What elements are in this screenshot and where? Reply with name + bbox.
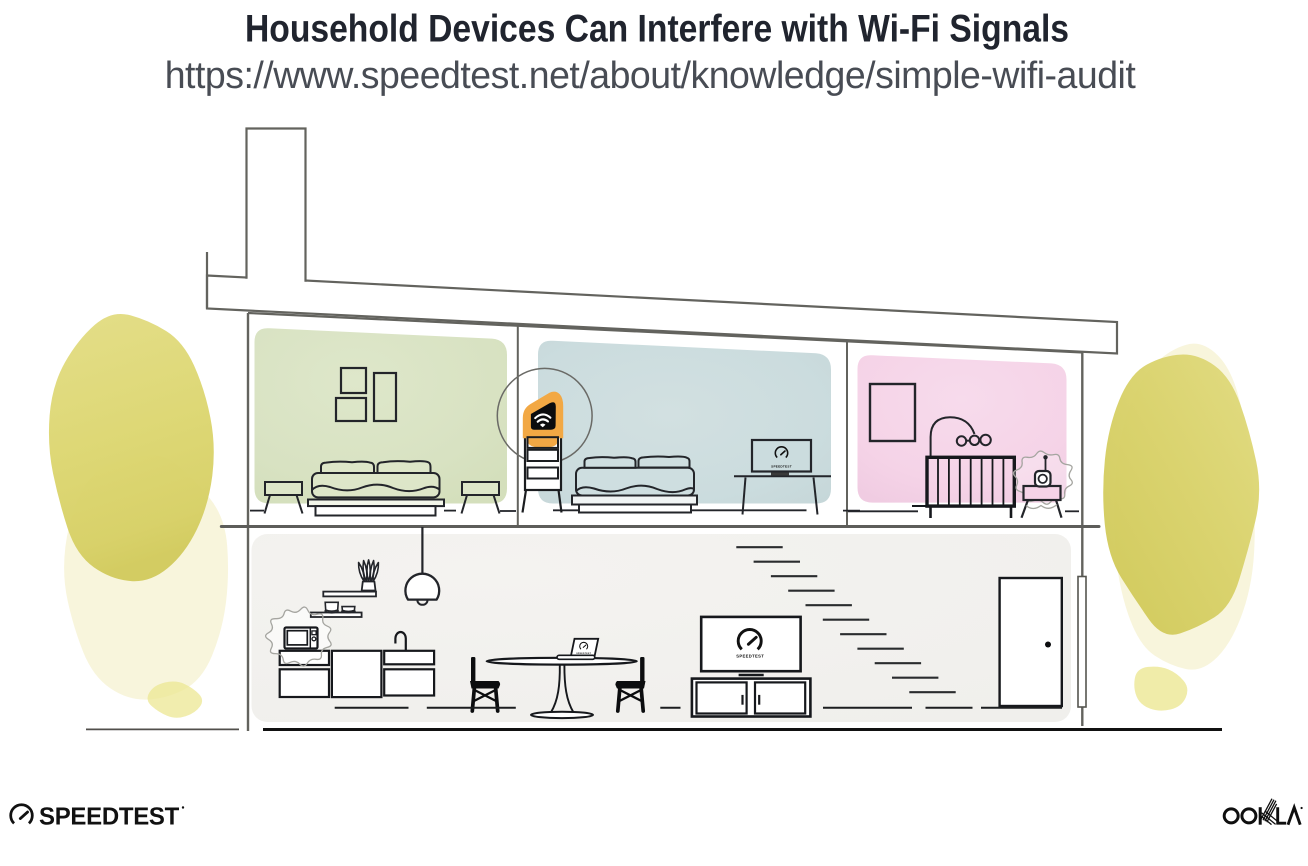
svg-text:https://www.speedtest.net/abou: https://www.speedtest.net/about/knowledg… xyxy=(165,55,1137,97)
svg-text:SPEEDTEST: SPEEDTEST xyxy=(576,652,591,654)
svg-text:SPEEDTEST: SPEEDTEST xyxy=(39,804,179,831)
svg-text:SPEEDTEST: SPEEDTEST xyxy=(736,654,764,659)
svg-text:Household Devices Can Interfer: Household Devices Can Interfere with Wi-… xyxy=(245,8,1069,51)
svg-text:SPEEDTEST: SPEEDTEST xyxy=(771,465,792,468)
